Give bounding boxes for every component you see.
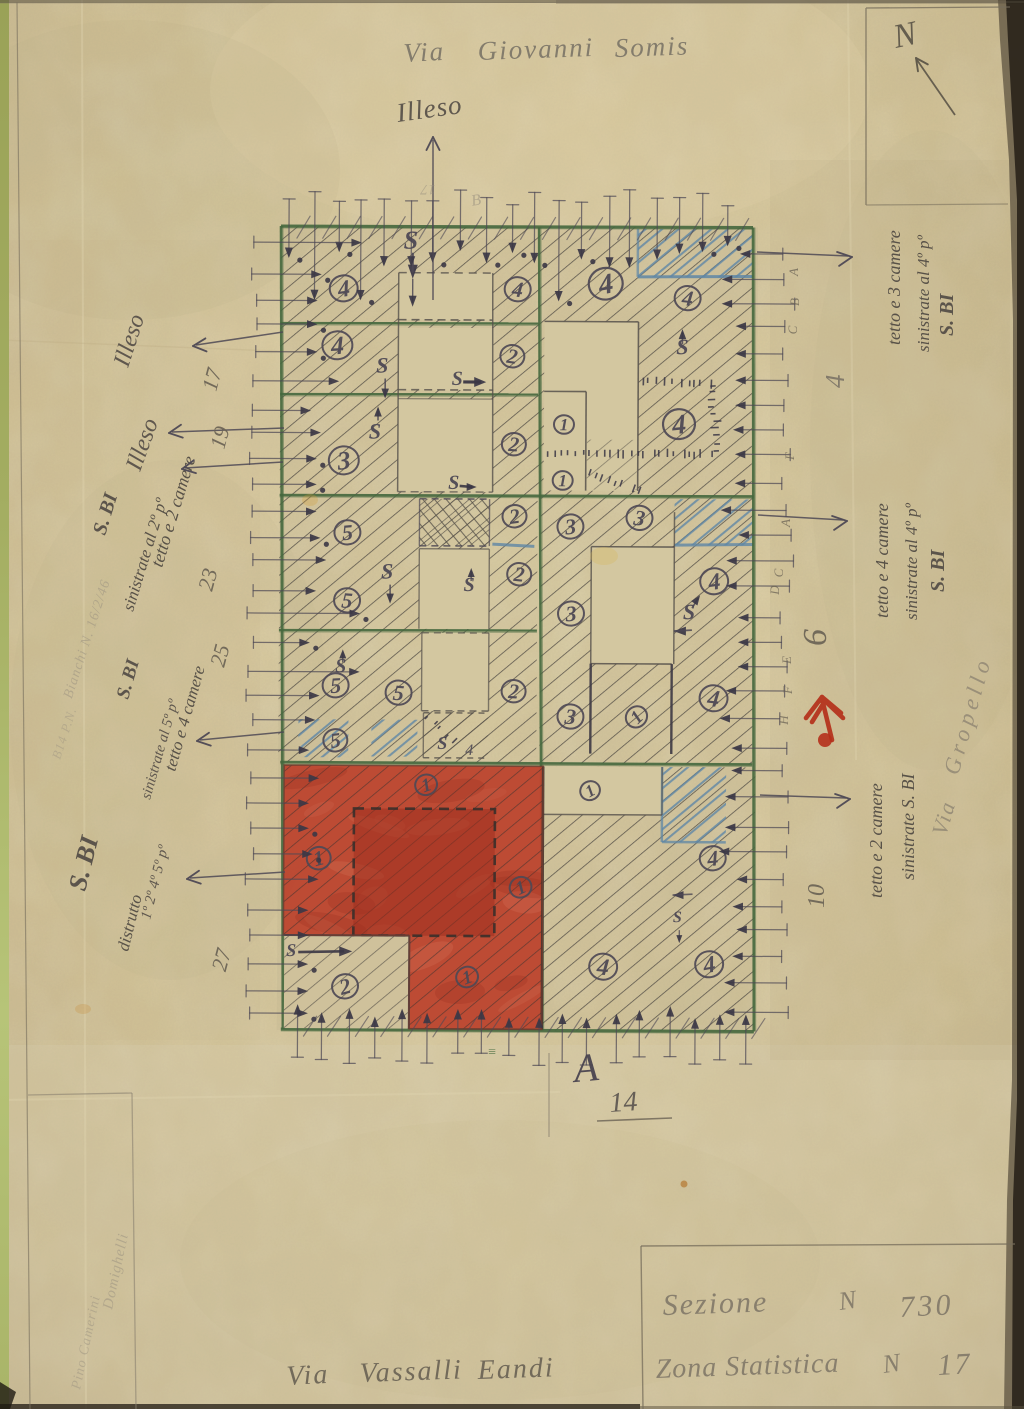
svg-text:14: 14 — [608, 1086, 638, 1119]
svg-text:6: 6 — [797, 629, 834, 646]
svg-text:S: S — [448, 472, 459, 494]
svg-text:F: F — [780, 685, 795, 695]
svg-text:S. BI: S. BI — [936, 293, 958, 336]
svg-text:sinistrate S. BI: sinistrate S. BI — [898, 772, 918, 880]
svg-text:730: 730 — [899, 1288, 955, 1324]
svg-text:tetto e 2 camere: tetto e 2 camere — [866, 783, 886, 898]
svg-text:1: 1 — [560, 415, 569, 434]
svg-text:4: 4 — [595, 954, 610, 981]
svg-text:5: 5 — [341, 587, 354, 613]
svg-text:C: C — [771, 568, 786, 577]
svg-text:S: S — [376, 353, 388, 378]
svg-text:Giovanni: Giovanni — [477, 32, 594, 66]
svg-text:Somis: Somis — [614, 30, 690, 63]
svg-text:E: E — [779, 656, 794, 665]
svg-text:S: S — [464, 574, 475, 596]
svg-text:Via: Via — [286, 1359, 330, 1392]
svg-text:S: S — [335, 655, 346, 677]
svg-text:3: 3 — [563, 703, 577, 729]
svg-text:≡: ≡ — [487, 1045, 496, 1060]
svg-text:Zona Statistica: Zona Statistica — [655, 1348, 840, 1385]
svg-text:17: 17 — [937, 1347, 973, 1382]
svg-text:C: C — [785, 325, 800, 334]
svg-text:4: 4 — [670, 409, 688, 441]
svg-text:Sezione: Sezione — [662, 1285, 769, 1322]
svg-text:sinistrate al 4º pº: sinistrate al 4º pº — [914, 234, 933, 352]
svg-text:B: B — [787, 298, 802, 306]
svg-text:3: 3 — [563, 514, 577, 540]
svg-text:F: F — [782, 451, 797, 461]
svg-text:5: 5 — [341, 519, 354, 545]
svg-text:S: S — [381, 559, 393, 584]
svg-text:S. BI: S. BI — [927, 549, 949, 592]
svg-text:H: H — [776, 715, 791, 726]
svg-text:tetto e 3 camere: tetto e 3 camere — [884, 230, 904, 345]
svg-text:2: 2 — [507, 432, 521, 457]
svg-text:1: 1 — [558, 471, 567, 490]
svg-text:4: 4 — [510, 276, 524, 302]
svg-text:S: S — [683, 599, 695, 624]
svg-text:4: 4 — [465, 742, 473, 759]
svg-text:5: 5 — [392, 680, 405, 706]
svg-text:Vassalli: Vassalli — [359, 1354, 463, 1389]
svg-text:D: D — [767, 585, 782, 596]
svg-text:A: A — [778, 519, 793, 528]
svg-text:S: S — [369, 418, 381, 443]
svg-text:4: 4 — [329, 331, 345, 361]
svg-text:S: S — [437, 733, 447, 753]
svg-text:17: 17 — [419, 181, 436, 197]
svg-text:3: 3 — [335, 446, 352, 476]
svg-text:S: S — [452, 368, 463, 390]
svg-text:Eandi: Eandi — [476, 1352, 555, 1386]
svg-text:4: 4 — [820, 375, 850, 389]
svg-text:A: A — [786, 268, 801, 277]
svg-text:Via: Via — [403, 36, 446, 68]
svg-text:S: S — [673, 909, 682, 926]
svg-text:4: 4 — [705, 845, 719, 871]
svg-text:tetto e 4 camere: tetto e 4 camere — [872, 503, 892, 618]
svg-text:10: 10 — [804, 884, 830, 908]
svg-text:sinistrate al 4º pº: sinistrate al 4º pº — [902, 502, 921, 620]
svg-text:2: 2 — [507, 679, 520, 704]
svg-text:S: S — [286, 940, 296, 960]
svg-text:3: 3 — [564, 601, 578, 627]
